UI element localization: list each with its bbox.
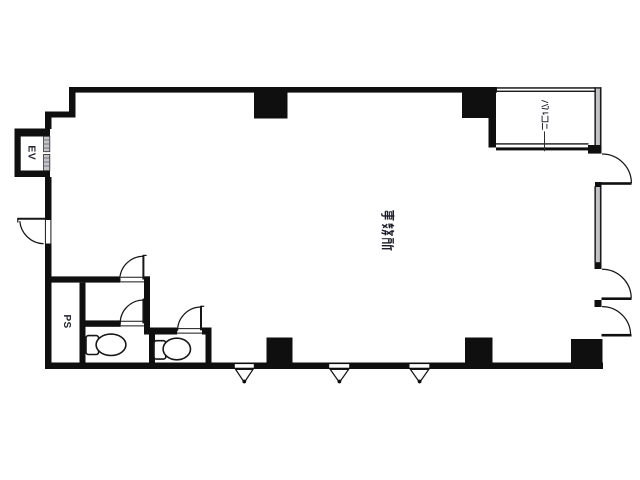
svg-text:EV: EV	[26, 145, 38, 160]
svg-text:PS: PS	[61, 314, 72, 328]
